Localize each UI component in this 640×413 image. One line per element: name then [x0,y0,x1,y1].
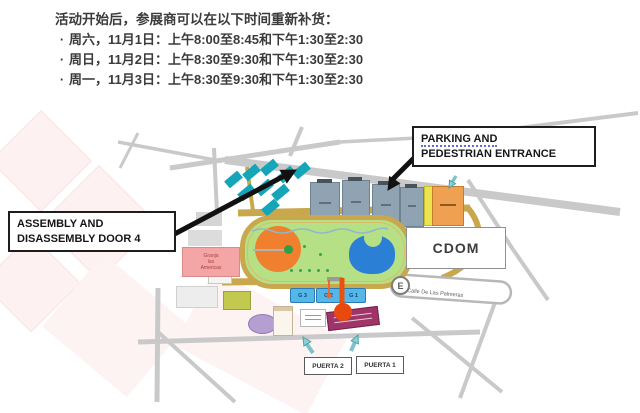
pin-dot [327,294,332,299]
annotation-layer [0,0,640,413]
puerta-1-label: PUERTA 1 [364,362,395,369]
entrance-arrows [303,176,456,353]
arrow-up-icon [351,335,358,344]
puerta-2-label: PUERTA 2 [312,363,343,370]
parking-entrance-callout: PARKING AND PEDESTRIAN ENTRANCE [412,126,596,167]
parking-callout-line1: PARKING AND [421,132,587,147]
stream-line [252,228,388,233]
assembly-callout-line1: ASSEMBLY AND [17,217,167,232]
assembly-callout-line2: DISASSEMBLY DOOR 4 [17,232,167,247]
location-pin-icon [334,303,352,321]
page: 活动开始后，参展商可以在以下时间重新补货： ·周六，11月1日：上午8:00至8… [0,0,640,413]
spellcheck-underline: PARKING AND [421,133,497,147]
assembly-door-callout: ASSEMBLY AND DISASSEMBLY DOOR 4 [8,211,176,252]
puerta-1-gatebox: PUERTA 1 [356,356,404,374]
e-parking-label: E [397,281,403,291]
arrow-shaft [351,342,355,351]
orange-pin-marker [327,278,353,321]
parking-callout-line2: PEDESTRIAN ENTRANCE [421,147,587,162]
puerta-2-gatebox: PUERTA 2 [304,357,352,375]
